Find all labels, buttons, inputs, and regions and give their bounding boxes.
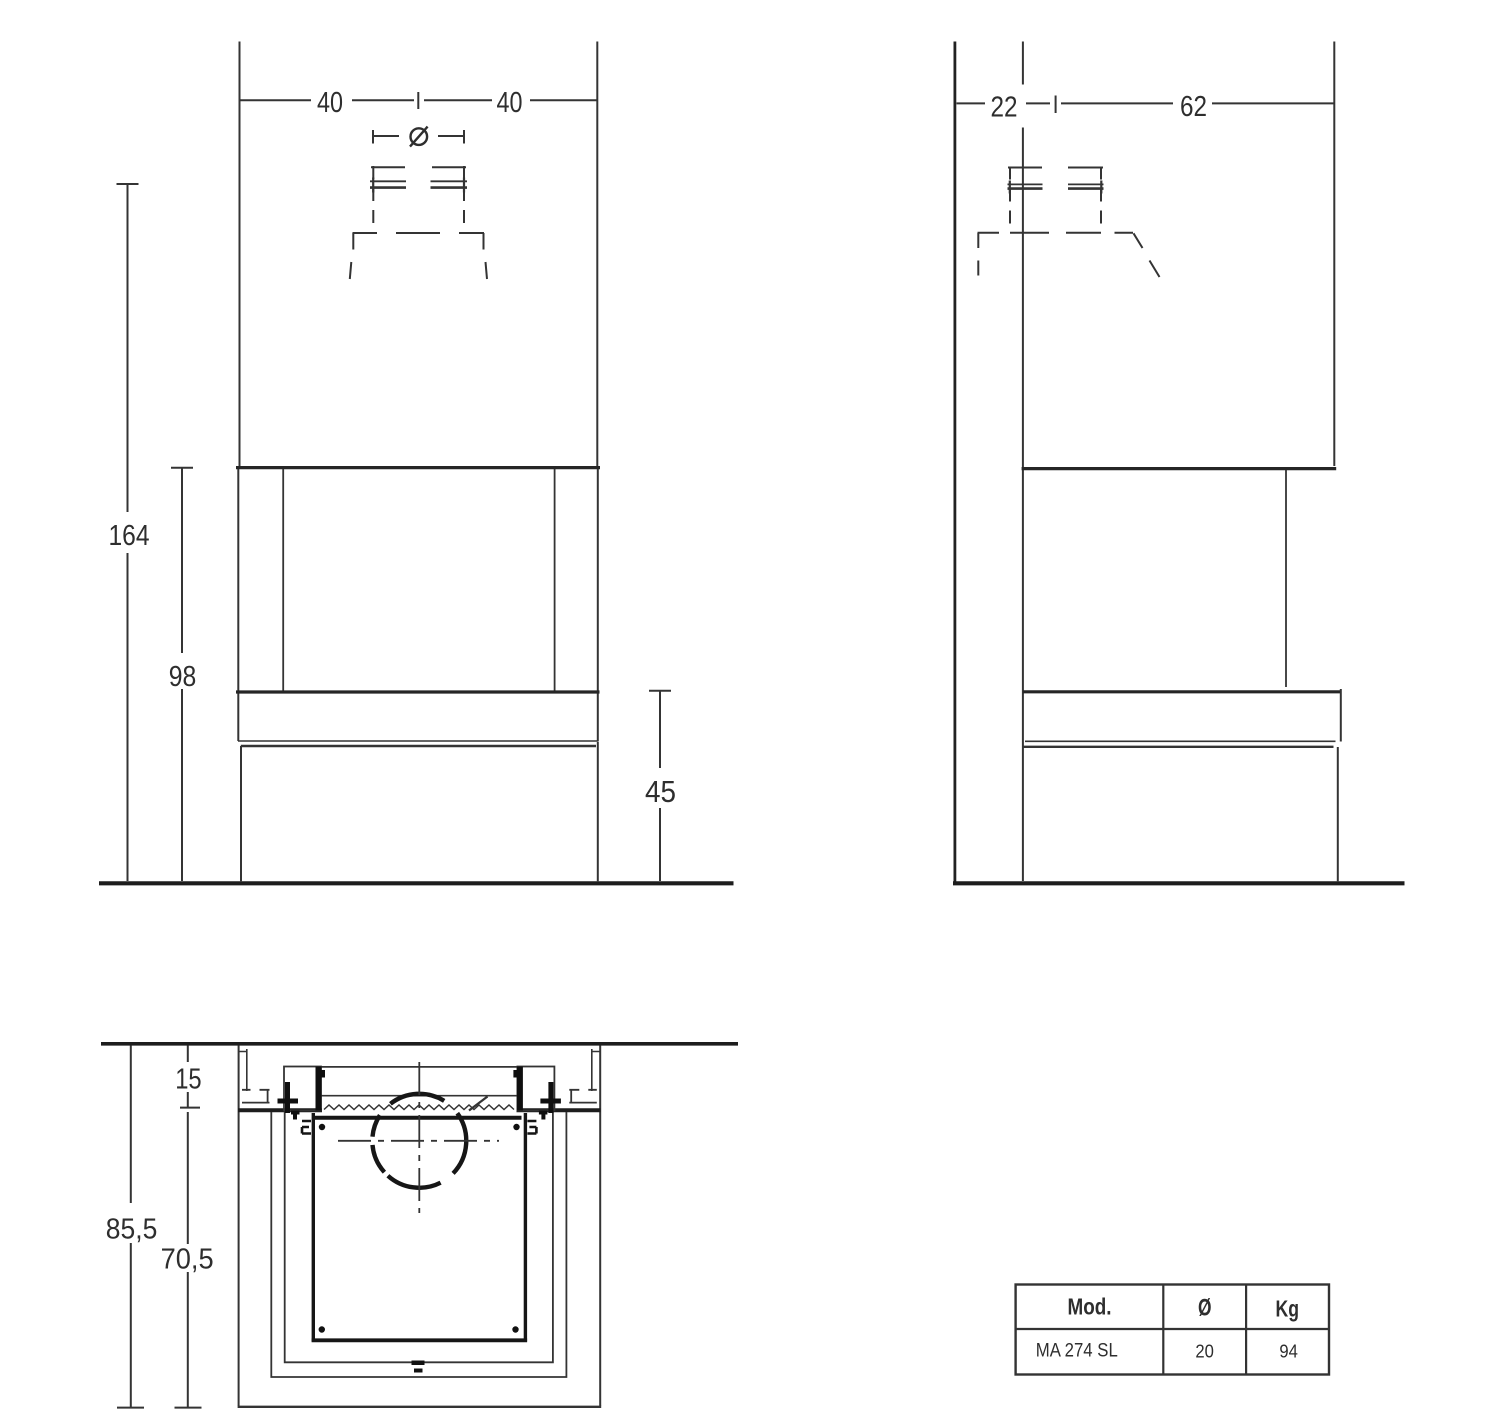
svg-text:Mod.: Mod. <box>1068 1294 1112 1320</box>
svg-text:20: 20 <box>1195 1342 1214 1362</box>
svg-text:62: 62 <box>1180 91 1207 123</box>
svg-text:40: 40 <box>317 87 343 119</box>
svg-text:Ø: Ø <box>1198 1295 1212 1322</box>
svg-text:MA 274 SL: MA 274 SL <box>1036 1339 1118 1361</box>
svg-text:85,5: 85,5 <box>106 1213 158 1245</box>
svg-text:70,5: 70,5 <box>161 1243 214 1275</box>
svg-text:98: 98 <box>169 661 197 693</box>
svg-text:40: 40 <box>497 87 523 119</box>
svg-text:15: 15 <box>175 1063 201 1095</box>
svg-text:164: 164 <box>109 520 150 552</box>
svg-text:Kg: Kg <box>1276 1296 1300 1322</box>
svg-text:94: 94 <box>1279 1342 1298 1362</box>
svg-text:22: 22 <box>991 91 1018 123</box>
svg-text:45: 45 <box>645 774 676 809</box>
